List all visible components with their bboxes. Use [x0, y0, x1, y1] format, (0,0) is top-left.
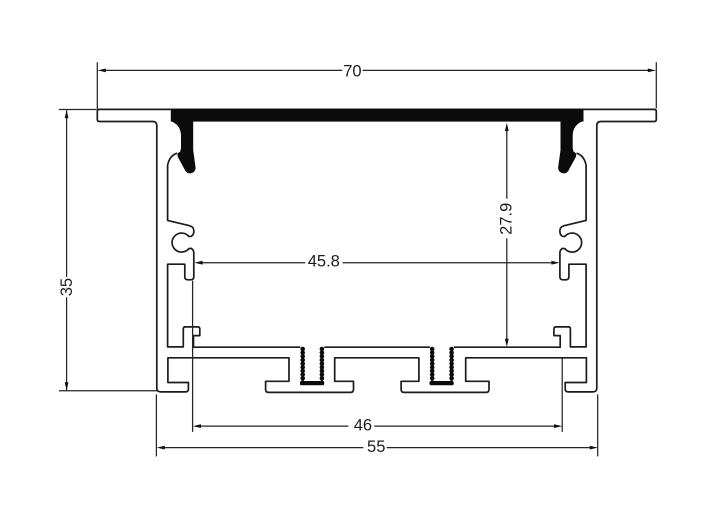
svg-text:27.9: 27.9	[498, 203, 516, 235]
svg-text:45.8: 45.8	[308, 252, 340, 270]
svg-text:70: 70	[343, 62, 361, 80]
svg-text:35: 35	[58, 278, 76, 296]
svg-text:55: 55	[367, 438, 385, 456]
svg-text:46: 46	[354, 417, 372, 435]
